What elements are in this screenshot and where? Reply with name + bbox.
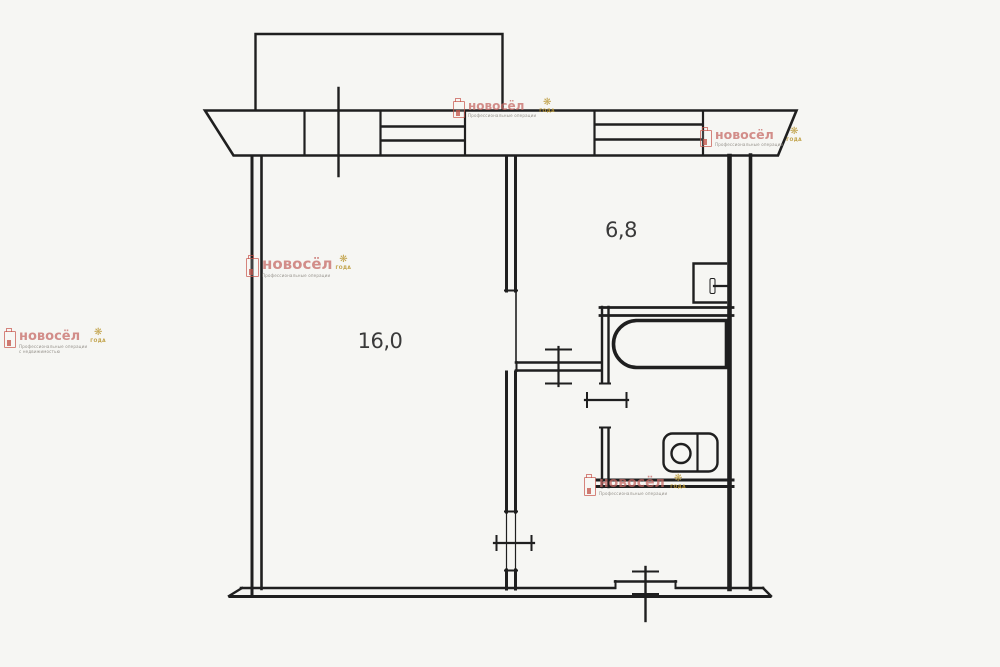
kitchen-area-label: 6,8	[605, 218, 637, 242]
kitchen-door-mark	[546, 347, 571, 386]
kitchen-sink	[694, 264, 730, 303]
window-band	[205, 111, 797, 156]
living-hall-wall	[505, 372, 517, 589]
living-room-area-label: 16,0	[358, 329, 403, 353]
living-room-window-glazing	[381, 127, 464, 141]
living-room-door-mark	[494, 536, 534, 550]
floor-plan-page: 16,0 6,8 новосёл Профессиональные операц…	[0, 0, 1000, 667]
entrance-door-mark	[633, 567, 658, 621]
bathtub	[614, 321, 727, 368]
toilet	[664, 434, 718, 472]
bottom-wall	[229, 581, 771, 597]
left-wall	[252, 156, 262, 596]
right-wall	[730, 155, 751, 589]
living-kitchen-wall	[505, 157, 517, 362]
floor-plan-drawing: 16,0 6,8	[0, 0, 1000, 667]
kitchen-window-glazing	[595, 125, 702, 140]
bathroom-door-mark	[585, 393, 628, 407]
balcony-outline	[256, 34, 503, 110]
